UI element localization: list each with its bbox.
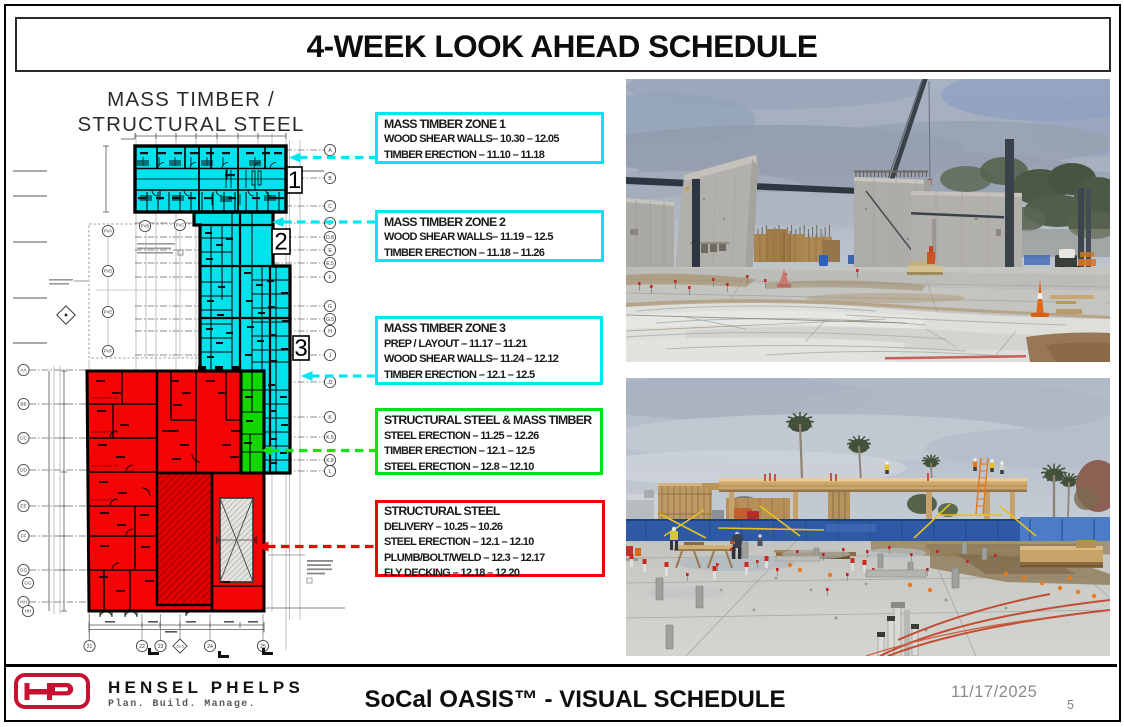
svg-text:22: 22 <box>139 644 145 650</box>
svg-text:K.5: K.5 <box>326 435 334 441</box>
svg-text:E.5: E.5 <box>326 261 334 267</box>
svg-text:J2: J2 <box>327 380 333 386</box>
svg-text:PVF: PVF <box>104 349 113 354</box>
svg-text:F: F <box>328 275 331 281</box>
svg-text:DD: DD <box>20 468 27 473</box>
svg-text:PVB: PVB <box>141 224 150 229</box>
svg-text:BB: BB <box>20 402 26 407</box>
svg-text:1: 1 <box>288 167 301 194</box>
svg-text:EE: EE <box>20 504 26 509</box>
svg-text:HH: HH <box>20 600 27 605</box>
svg-text:C: C <box>328 204 332 210</box>
svg-text:D.8: D.8 <box>326 235 334 241</box>
svg-text:23.5: 23.5 <box>176 645 183 649</box>
svg-text:GG: GG <box>20 568 28 573</box>
svg-text:AA: AA <box>20 368 27 373</box>
svg-text:PVC: PVC <box>176 223 185 228</box>
svg-text:24: 24 <box>207 644 213 650</box>
svg-text:G.5: G.5 <box>326 317 334 323</box>
svg-text:FF: FF <box>21 534 27 539</box>
svg-text:PVA: PVA <box>104 229 112 234</box>
svg-text:GG: GG <box>24 581 32 586</box>
svg-text:21: 21 <box>87 644 93 650</box>
svg-text:2: 2 <box>274 229 287 256</box>
svg-text:K.8: K.8 <box>326 458 334 464</box>
svg-text:PVE: PVE <box>104 310 113 315</box>
svg-text:PVD: PVD <box>104 269 113 274</box>
svg-text:3: 3 <box>294 335 307 362</box>
svg-text:L: L <box>329 469 332 475</box>
svg-text:CC: CC <box>20 436 27 441</box>
svg-text:H: H <box>328 329 332 335</box>
svg-text:HH: HH <box>25 609 32 614</box>
svg-text:23: 23 <box>158 644 164 650</box>
svg-text:G: G <box>328 304 332 310</box>
